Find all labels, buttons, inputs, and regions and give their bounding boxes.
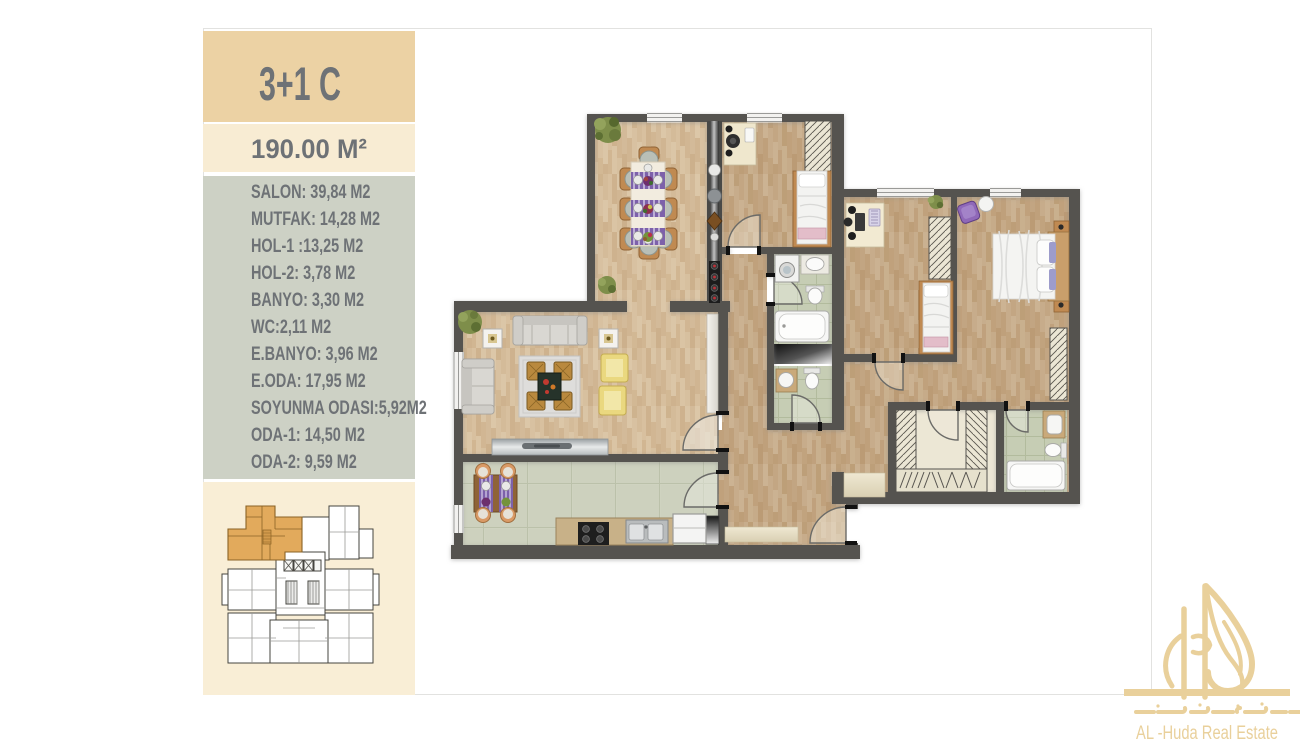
- svg-text:SALON: 39,84 M2: SALON: 39,84 M2: [251, 181, 370, 202]
- svg-text:AL -Huda Real Estate: AL -Huda Real Estate: [1136, 723, 1278, 744]
- svg-text:WC:2,11 M2: WC:2,11 M2: [251, 316, 331, 337]
- svg-text:BANYO: 3,30 M2: BANYO: 3,30 M2: [251, 289, 364, 310]
- svg-text:HOL-1 :13,25 M2: HOL-1 :13,25 M2: [251, 235, 363, 256]
- svg-text:SOYUNMA ODASI:5,92M2: SOYUNMA ODASI:5,92M2: [251, 397, 427, 418]
- svg-text:ODA-1: 14,50 M2: ODA-1: 14,50 M2: [251, 424, 365, 445]
- svg-text:E.ODA: 17,95 M2: E.ODA: 17,95 M2: [251, 370, 366, 391]
- svg-text:E.BANYO: 3,96 M2: E.BANYO: 3,96 M2: [251, 343, 378, 364]
- svg-text:MUTFAK: 14,28 M2: MUTFAK: 14,28 M2: [251, 208, 380, 229]
- svg-text:ODA-2: 9,59 M2: ODA-2: 9,59 M2: [251, 451, 357, 472]
- svg-text:HOL-2: 3,78 M2: HOL-2: 3,78 M2: [251, 262, 355, 283]
- svg-text:190.00 M²: 190.00 M²: [251, 134, 367, 164]
- svg-text:3+1 C: 3+1 C: [259, 57, 341, 110]
